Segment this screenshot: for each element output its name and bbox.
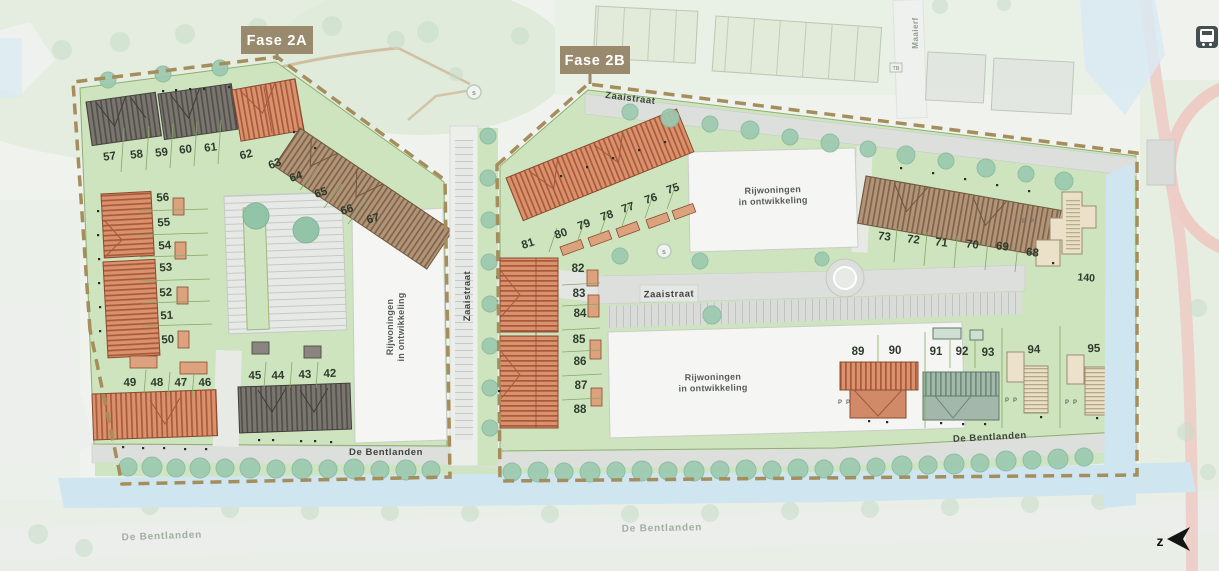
site-plan-canvas: s TB Rijwoningen in ontwikkeling xyxy=(0,0,1219,571)
site-plan: s TB Rijwoningen in ontwikkeling xyxy=(0,0,1219,571)
plot-54: 54 xyxy=(158,240,172,253)
street-label-maaierf: Maaierf xyxy=(911,17,920,48)
phase-2b: Rijwoningen in ontwikkeling Rijwoningen … xyxy=(496,90,1136,451)
plot-88: 88 xyxy=(574,404,587,416)
fase-2a-label: Fase 2A xyxy=(247,33,308,49)
development-note-2b-south: Rijwoningen in ontwikkeling xyxy=(678,371,747,393)
plot-72: 72 xyxy=(906,233,920,246)
plot-86: 86 xyxy=(574,356,587,368)
plot-87: 87 xyxy=(575,380,588,392)
plot-83: 83 xyxy=(573,288,586,300)
playground-marker-label: s xyxy=(662,249,666,256)
plot-51: 51 xyxy=(160,310,174,323)
street-label-bentlanden-faded-east: De Bentlanden xyxy=(622,522,703,534)
development-note-2b-north-line1: Rijwoningen xyxy=(744,184,801,196)
plot-91: 91 xyxy=(930,346,943,358)
bus-stop-icon xyxy=(1196,26,1218,48)
p-marker: P xyxy=(1013,398,1017,404)
plot-73: 73 xyxy=(877,230,891,243)
p-marker: P xyxy=(1030,219,1034,225)
p-marker: P xyxy=(1073,400,1077,406)
plot-94: 94 xyxy=(1027,344,1041,356)
plot-42: 42 xyxy=(323,368,336,380)
plot-95: 95 xyxy=(1087,343,1101,355)
plot-53: 53 xyxy=(159,262,173,275)
plot-57: 57 xyxy=(103,150,117,163)
p-marker: P xyxy=(1005,398,1009,404)
plot-56: 56 xyxy=(156,192,170,205)
plot-140: 140 xyxy=(1077,271,1095,284)
plot-61: 61 xyxy=(204,141,219,155)
street-label-zaaistraat-middle: Zaaistraat xyxy=(644,289,695,301)
development-note-2b-south-line1: Rijwoningen xyxy=(685,372,742,383)
plot-60: 60 xyxy=(179,143,193,156)
plot-58: 58 xyxy=(130,148,145,162)
plot-84: 84 xyxy=(574,308,587,320)
playground-marker-label: s xyxy=(472,90,476,97)
plot-82: 82 xyxy=(572,263,585,275)
plot-85: 85 xyxy=(573,334,586,346)
p-marker: P xyxy=(1022,219,1026,225)
p-marker: P xyxy=(838,400,842,406)
house-89-90 xyxy=(840,362,918,418)
plot-43: 43 xyxy=(298,369,311,381)
plot-46: 46 xyxy=(198,377,211,389)
plot-89: 89 xyxy=(852,346,865,358)
rowhouse-59-61 xyxy=(158,84,238,140)
fase-2b-label: Fase 2B xyxy=(565,53,626,69)
plot-90: 90 xyxy=(889,345,902,357)
plot-69: 69 xyxy=(995,240,1009,253)
plot-50: 50 xyxy=(161,334,175,347)
plot-45: 45 xyxy=(248,370,262,382)
plot-59: 59 xyxy=(155,146,169,159)
plot-55: 55 xyxy=(157,217,171,230)
development-note-2a-line2: in ontwikkeling xyxy=(396,292,406,361)
p-marker: P xyxy=(1065,400,1069,406)
plot-92: 92 xyxy=(956,346,969,358)
plot-52: 52 xyxy=(159,287,173,300)
plot-49: 49 xyxy=(123,377,136,389)
plot-68: 68 xyxy=(1025,246,1040,260)
water-strip-east xyxy=(1104,163,1136,508)
turning-circle xyxy=(826,259,864,297)
utility-box-label: TB xyxy=(893,66,900,72)
parking-lot-2a xyxy=(224,192,347,334)
development-note-2a-line1: Rijwoningen xyxy=(385,299,395,355)
plot-48: 48 xyxy=(150,377,164,389)
development-note-2b-north: Rijwoningen in ontwikkeling xyxy=(738,184,808,207)
plot-93: 93 xyxy=(982,347,995,359)
development-note-2a: Rijwoningen in ontwikkeling xyxy=(385,292,406,361)
p-marker: P xyxy=(846,400,850,406)
plot-70: 70 xyxy=(965,238,979,251)
street-label-zaaistraat-vertical: Zaaistraat xyxy=(462,270,473,321)
development-note-2b-south-line2: in ontwikkeling xyxy=(678,382,747,393)
street-label-bentlanden-2a: De Bentlanden xyxy=(349,447,423,458)
compass-south-label: z xyxy=(1157,533,1164,549)
plot-44: 44 xyxy=(271,370,285,382)
plot-71: 71 xyxy=(934,236,949,250)
plot-47: 47 xyxy=(174,377,187,389)
